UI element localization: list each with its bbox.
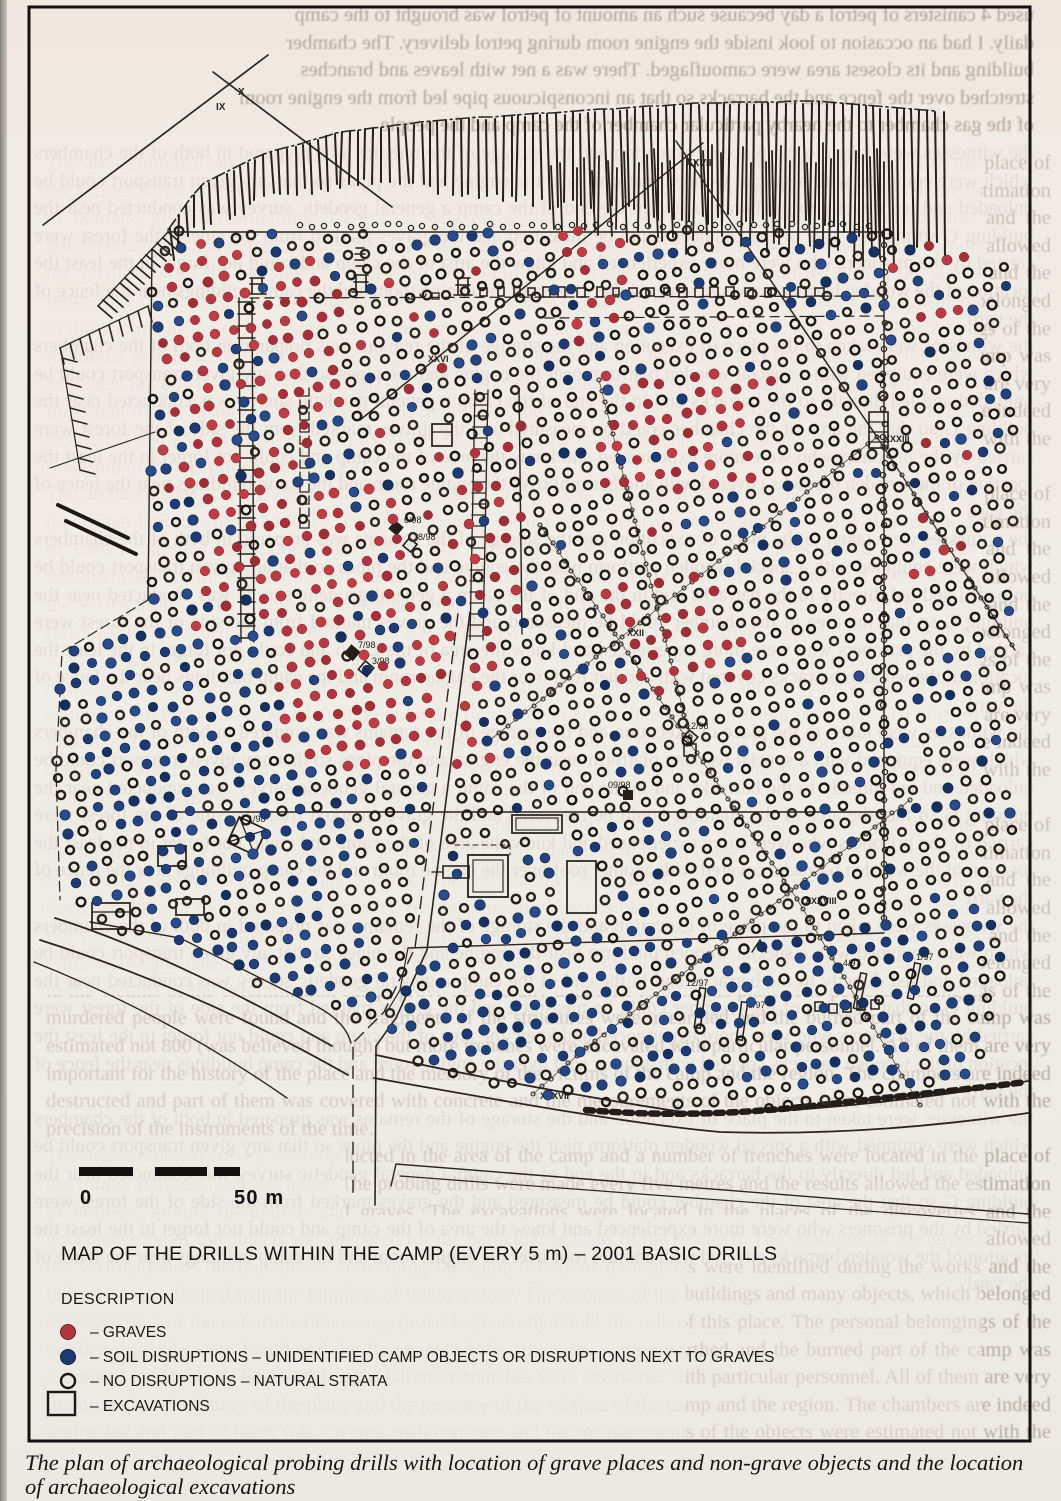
svg-text:– SOIL DISRUPTIONS – UNIDENTIF: – SOIL DISRUPTIONS – UNIDENTIFIED CAMP O… [90,1349,774,1366]
svg-text:The plan of archaeological pro: The plan of archaeological probing drill… [25,1450,1023,1475]
svg-text:– NO DISRUPTIONS – NATURAL STR: – NO DISRUPTIONS – NATURAL STRATA [90,1373,388,1390]
svg-text:– EXCAVATIONS: – EXCAVATIONS [90,1398,210,1415]
svg-text:IX: IX [216,102,226,113]
svg-text:7/98: 7/98 [358,640,376,650]
svg-text:of archaeological excavations: of archaeological excavations [25,1474,296,1499]
svg-text:X: X [238,87,245,98]
svg-text:DESCRIPTION: DESCRIPTION [61,1291,175,1308]
svg-text:0: 0 [80,1187,91,1209]
svg-text:MAP OF THE DRILLS WITHIN THE C: MAP OF THE DRILLS WITHIN THE CAMP (EVERY… [61,1243,777,1265]
svg-text:– GRAVES: – GRAVES [90,1324,166,1341]
svg-text:XXVII: XXVII [686,158,712,169]
svg-text:XXII: XXII [627,628,644,638]
svg-text:50 m: 50 m [234,1187,284,1209]
svg-text:XXVI: XXVI [428,354,449,364]
